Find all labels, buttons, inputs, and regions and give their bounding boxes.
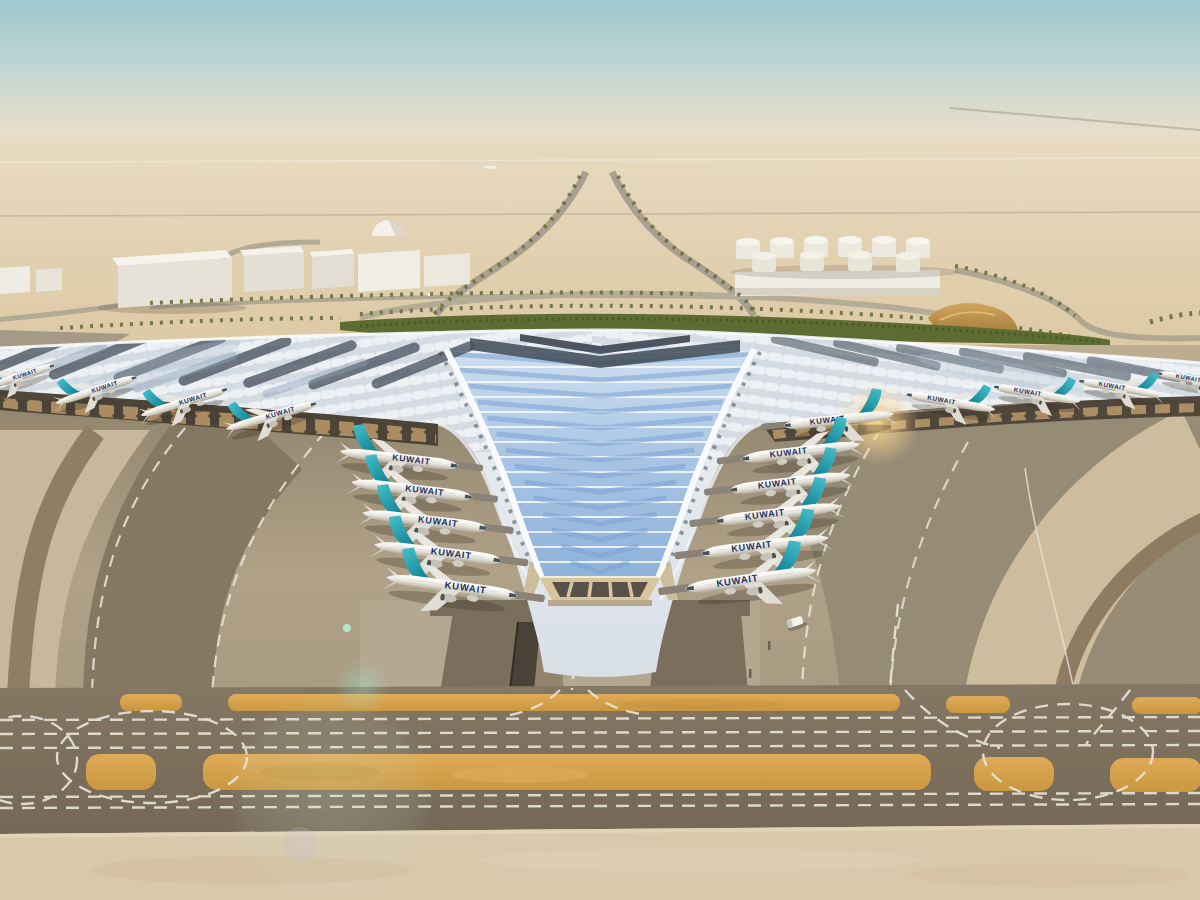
bollard [749, 669, 752, 678]
airport-rendering: KUWAIT [0, 0, 1200, 900]
foreground-sand [0, 824, 1200, 900]
sky [0, 0, 1200, 140]
bollard [768, 641, 771, 650]
